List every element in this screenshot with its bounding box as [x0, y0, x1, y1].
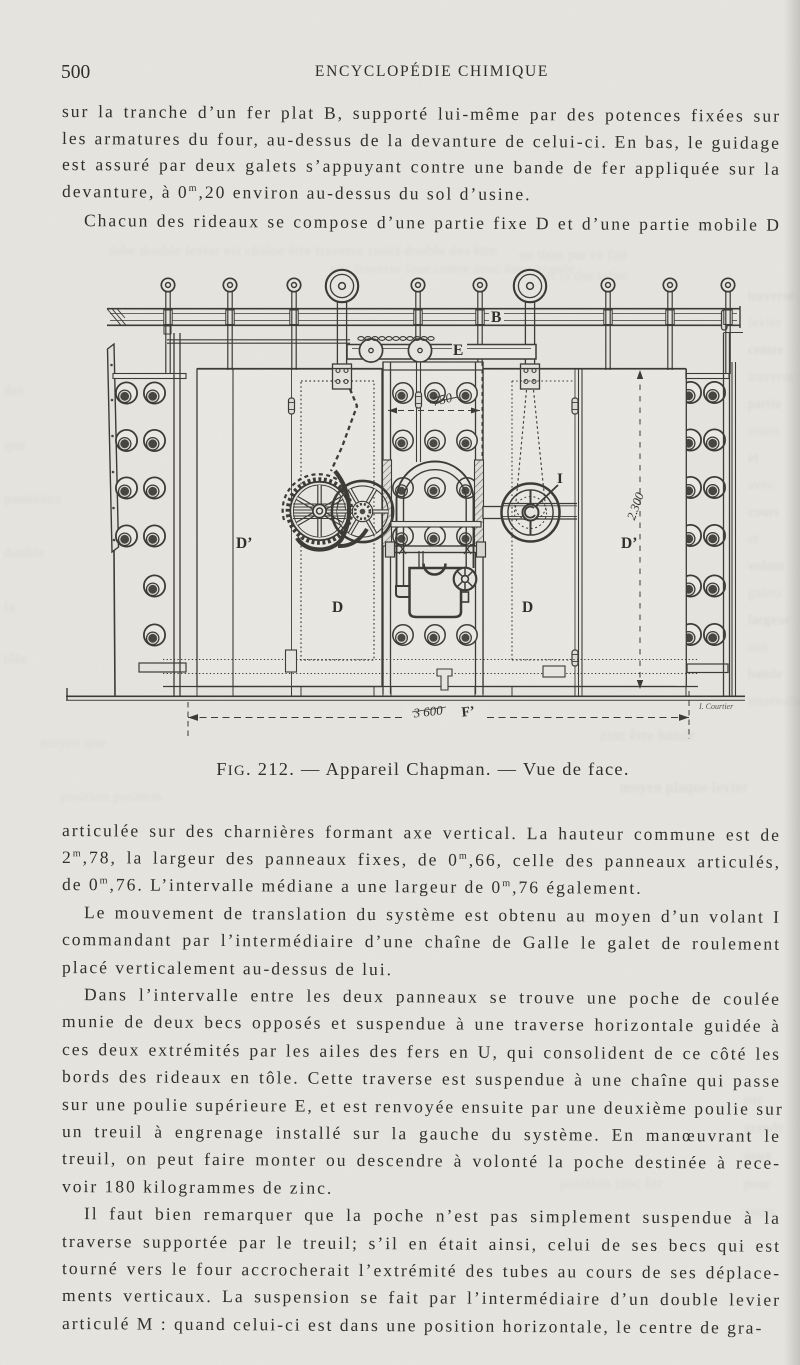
svg-text:D’: D’: [621, 535, 637, 552]
svg-text:D: D: [522, 599, 533, 616]
svg-text:I: I: [557, 471, 563, 487]
svg-text:D’: D’: [236, 535, 252, 552]
svg-text:D: D: [332, 599, 343, 616]
svg-text:E: E: [453, 342, 463, 359]
svg-text:I. Courtier: I. Courtier: [698, 702, 734, 711]
svg-text:B: B: [491, 309, 501, 326]
svg-text:F’: F’: [461, 704, 476, 720]
